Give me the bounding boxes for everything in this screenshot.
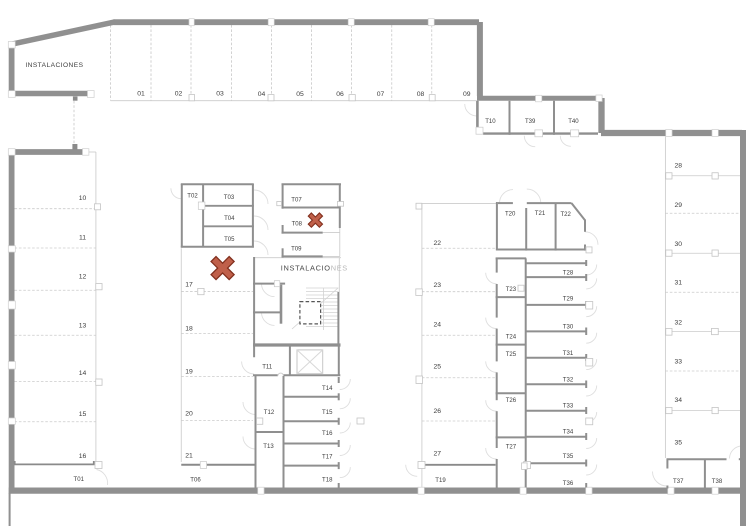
svg-text:T19: T19 <box>435 478 446 484</box>
svg-text:T34: T34 <box>563 430 574 436</box>
svg-text:10: 10 <box>79 195 87 202</box>
svg-text:35: 35 <box>674 440 682 447</box>
svg-text:T27: T27 <box>506 445 517 451</box>
svg-text:T12: T12 <box>264 410 275 416</box>
svg-text:T02: T02 <box>187 194 198 200</box>
svg-text:06: 06 <box>336 91 344 98</box>
svg-text:22: 22 <box>433 240 441 247</box>
svg-text:T01: T01 <box>74 477 85 483</box>
svg-text:T10: T10 <box>485 119 496 125</box>
svg-text:24: 24 <box>433 321 441 328</box>
svg-text:INSTALACIONES: INSTALACIONES <box>281 264 348 273</box>
svg-text:T03: T03 <box>224 195 235 201</box>
svg-text:T36: T36 <box>563 481 574 487</box>
svg-text:16: 16 <box>79 453 87 460</box>
svg-text:20: 20 <box>185 410 193 417</box>
svg-text:T16: T16 <box>322 431 333 437</box>
svg-text:27: 27 <box>433 450 441 457</box>
svg-text:11: 11 <box>79 234 86 241</box>
svg-text:T18: T18 <box>322 478 333 484</box>
svg-text:17: 17 <box>185 281 193 288</box>
svg-text:08: 08 <box>417 91 425 98</box>
svg-text:15: 15 <box>79 411 87 418</box>
svg-text:19: 19 <box>185 369 193 376</box>
svg-text:T15: T15 <box>322 410 333 416</box>
svg-text:T24: T24 <box>506 335 517 341</box>
svg-text:33: 33 <box>674 358 682 365</box>
svg-text:T35: T35 <box>563 454 574 460</box>
svg-text:T14: T14 <box>322 386 333 392</box>
svg-text:T23: T23 <box>506 287 517 293</box>
svg-text:T05: T05 <box>224 237 235 243</box>
svg-text:T39: T39 <box>525 119 536 125</box>
svg-text:21: 21 <box>185 452 193 459</box>
svg-text:30: 30 <box>674 241 682 248</box>
svg-text:T30: T30 <box>563 324 574 330</box>
svg-text:T08: T08 <box>292 222 303 228</box>
svg-text:02: 02 <box>175 91 183 98</box>
svg-text:T06: T06 <box>190 477 201 483</box>
svg-text:05: 05 <box>296 91 304 98</box>
svg-text:04: 04 <box>258 91 266 98</box>
svg-text:T07: T07 <box>291 197 302 203</box>
svg-text:28: 28 <box>674 163 682 170</box>
svg-text:T25: T25 <box>506 352 517 358</box>
svg-text:T11: T11 <box>262 365 273 371</box>
svg-text:09: 09 <box>463 91 471 98</box>
svg-text:T31: T31 <box>563 351 574 357</box>
svg-text:T17: T17 <box>322 454 333 460</box>
svg-text:T32: T32 <box>563 377 574 383</box>
svg-text:07: 07 <box>377 91 385 98</box>
svg-text:13: 13 <box>79 323 87 330</box>
svg-text:T22: T22 <box>560 212 571 218</box>
svg-text:26: 26 <box>433 408 441 415</box>
svg-text:25: 25 <box>433 363 441 370</box>
svg-text:T40: T40 <box>568 119 579 125</box>
svg-text:INSTALACIONES: INSTALACIONES <box>25 62 83 69</box>
svg-text:23: 23 <box>433 282 441 289</box>
svg-text:34: 34 <box>674 397 682 404</box>
svg-text:T20: T20 <box>505 212 516 218</box>
svg-text:18: 18 <box>185 325 193 332</box>
svg-text:01: 01 <box>137 91 145 98</box>
svg-text:31: 31 <box>674 279 682 286</box>
svg-text:32: 32 <box>674 319 682 326</box>
svg-text:T37: T37 <box>673 479 684 485</box>
svg-text:T13: T13 <box>263 444 274 450</box>
svg-text:T04: T04 <box>224 216 235 222</box>
svg-text:T33: T33 <box>563 403 574 409</box>
svg-text:14: 14 <box>79 370 87 377</box>
svg-text:T26: T26 <box>506 398 517 404</box>
svg-text:29: 29 <box>674 202 682 209</box>
svg-text:03: 03 <box>216 91 224 98</box>
svg-text:12: 12 <box>79 273 87 280</box>
svg-text:T38: T38 <box>712 479 723 485</box>
svg-text:T09: T09 <box>291 246 302 252</box>
svg-text:T28: T28 <box>563 271 574 277</box>
svg-text:T21: T21 <box>535 211 546 217</box>
svg-text:T29: T29 <box>563 297 574 303</box>
